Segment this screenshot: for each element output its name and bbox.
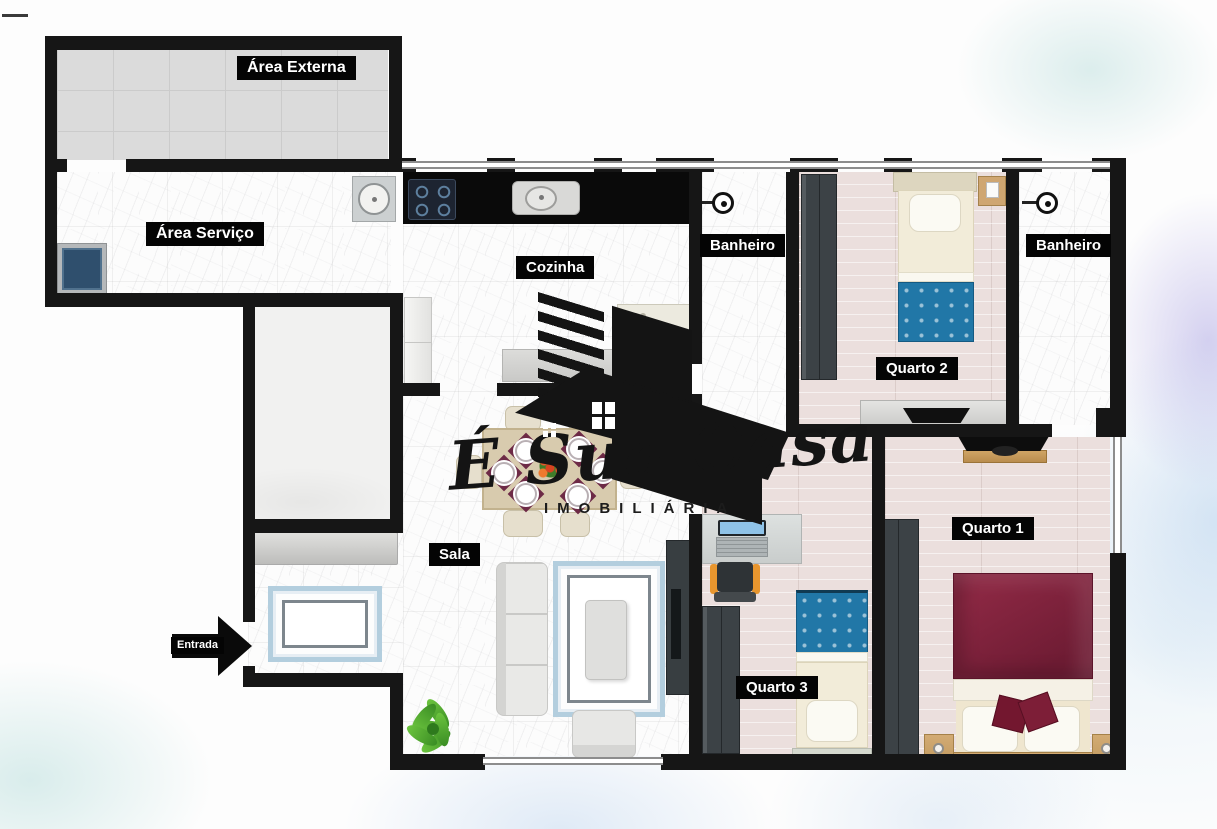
kitchen-sink bbox=[512, 181, 580, 215]
cooktop bbox=[408, 179, 456, 220]
room-label-entrada: Entrada bbox=[171, 637, 224, 654]
corner-dash bbox=[2, 14, 28, 17]
room-label-quarto-2: Quarto 2 bbox=[876, 357, 958, 380]
table-flowers bbox=[535, 452, 569, 482]
kitchen-bench bbox=[502, 349, 614, 382]
wall-servico-bottom bbox=[45, 293, 403, 307]
sofa bbox=[496, 562, 548, 716]
plate bbox=[493, 462, 515, 484]
plate bbox=[567, 485, 589, 507]
wall-h-mid-stub bbox=[1096, 408, 1112, 437]
laptop bbox=[716, 520, 768, 560]
rug-small bbox=[268, 586, 382, 662]
washing-machine bbox=[57, 243, 107, 295]
plate bbox=[568, 438, 590, 460]
dining-chair bbox=[620, 455, 646, 489]
shower-icon bbox=[712, 192, 734, 214]
plate bbox=[592, 460, 614, 482]
wall-v-q2-bath2 bbox=[1006, 172, 1019, 425]
lamp-icon bbox=[933, 743, 944, 754]
stove-knob bbox=[626, 313, 632, 319]
room-label-area-externa: Área Externa bbox=[237, 56, 356, 80]
stove-line bbox=[618, 331, 689, 332]
room-label-quarto-1: Quarto 1 bbox=[952, 517, 1034, 540]
quarto2-bed-headboard bbox=[893, 172, 977, 192]
wall-v-q3-q1 bbox=[872, 437, 885, 756]
plate bbox=[515, 440, 537, 462]
wall-externa-bottom-b bbox=[126, 159, 403, 172]
chair-back bbox=[714, 592, 756, 602]
wall-v-corridor-a bbox=[689, 172, 702, 364]
tv-screen bbox=[671, 589, 681, 659]
wall-kitchen-inner-a bbox=[403, 383, 440, 396]
bottom-window bbox=[483, 757, 663, 765]
room-label-sala: Sala bbox=[429, 543, 480, 566]
wall-v-corridor-c bbox=[689, 514, 702, 760]
wall-h-mid-c bbox=[885, 424, 1052, 437]
wall-left-mid bbox=[243, 293, 255, 622]
stove-knob bbox=[640, 313, 646, 319]
wall-sala-bottomleft bbox=[243, 673, 403, 687]
quarto2-pillow bbox=[909, 194, 961, 232]
room-label-banheiro-2: Banheiro bbox=[1026, 234, 1111, 257]
plant-center bbox=[427, 723, 439, 735]
dining-chair bbox=[503, 510, 543, 537]
dining-chair bbox=[456, 455, 482, 489]
garage-floor bbox=[255, 307, 390, 519]
room-label-area-servico: Área Serviço bbox=[146, 222, 264, 246]
desk-chair bbox=[710, 562, 760, 602]
chair-armrest bbox=[752, 564, 760, 594]
wall-h-mid-b bbox=[786, 424, 885, 437]
sideboard bbox=[253, 532, 398, 565]
kitchen-sink-drain bbox=[539, 195, 544, 200]
room-label-banheiro-1: Banheiro bbox=[700, 234, 785, 257]
quarto1-sheet-band bbox=[953, 679, 1093, 701]
quarto3-wardrobe bbox=[702, 606, 740, 754]
wall-externa-bottom-a bbox=[45, 159, 67, 172]
rug-small-inner bbox=[273, 591, 377, 657]
service-sink-drain bbox=[372, 197, 377, 202]
fridge-divider bbox=[405, 342, 431, 343]
wall-bottom-b bbox=[661, 754, 1126, 770]
quarto3-blanket bbox=[796, 590, 868, 654]
wall-right-lower bbox=[1110, 553, 1126, 770]
floor-plan: Área Externa Área Serviço Cozinha Banhei… bbox=[0, 0, 1217, 829]
right-window bbox=[1113, 437, 1122, 553]
room-label-cozinha: Cozinha bbox=[516, 256, 594, 279]
dining-chair bbox=[560, 512, 590, 537]
shower-icon bbox=[1036, 192, 1058, 214]
top-window-strip bbox=[402, 161, 1110, 169]
wall-kitchen-inner-b bbox=[497, 383, 617, 396]
armchair bbox=[572, 710, 636, 758]
laptop-keyboard bbox=[716, 537, 768, 557]
quarto3-pillow bbox=[806, 700, 858, 742]
quarto2-blanket bbox=[898, 282, 974, 342]
quarto1-blanket bbox=[953, 573, 1093, 679]
coffee-table bbox=[585, 600, 627, 680]
wall-h-mid-a bbox=[689, 424, 740, 437]
laptop-screen bbox=[718, 520, 766, 536]
stove bbox=[617, 304, 690, 386]
bathroom2-floor bbox=[1019, 172, 1110, 425]
quarto2-nightstand bbox=[978, 176, 1006, 206]
notepad bbox=[986, 182, 999, 198]
quarto2-tv bbox=[903, 408, 970, 423]
rug-small-center bbox=[282, 600, 368, 648]
laptop-display bbox=[720, 522, 764, 534]
wall-bottom-a bbox=[390, 754, 485, 770]
washing-machine-door bbox=[62, 248, 102, 290]
wall-externa-right bbox=[389, 36, 402, 172]
wall-externa-top bbox=[45, 36, 402, 50]
quarto3-sheet-band bbox=[796, 652, 868, 662]
quarto2-wardrobe bbox=[801, 174, 837, 380]
service-sink bbox=[352, 176, 396, 222]
plate bbox=[515, 483, 537, 505]
wall-v-bath1-q2 bbox=[786, 172, 799, 425]
quarto2-sheet-band bbox=[898, 272, 974, 282]
room-label-quarto-3: Quarto 3 bbox=[736, 676, 818, 699]
fridge bbox=[404, 297, 432, 385]
wall-kitchen-left bbox=[390, 293, 403, 533]
wall-sala-leftbottom-v bbox=[390, 673, 403, 770]
wall-right-upper bbox=[1110, 158, 1126, 437]
chair-seat bbox=[717, 562, 753, 592]
quarto1-tv-stand bbox=[992, 446, 1018, 456]
tv-unit bbox=[666, 540, 690, 695]
wall-sala-top bbox=[243, 519, 403, 533]
